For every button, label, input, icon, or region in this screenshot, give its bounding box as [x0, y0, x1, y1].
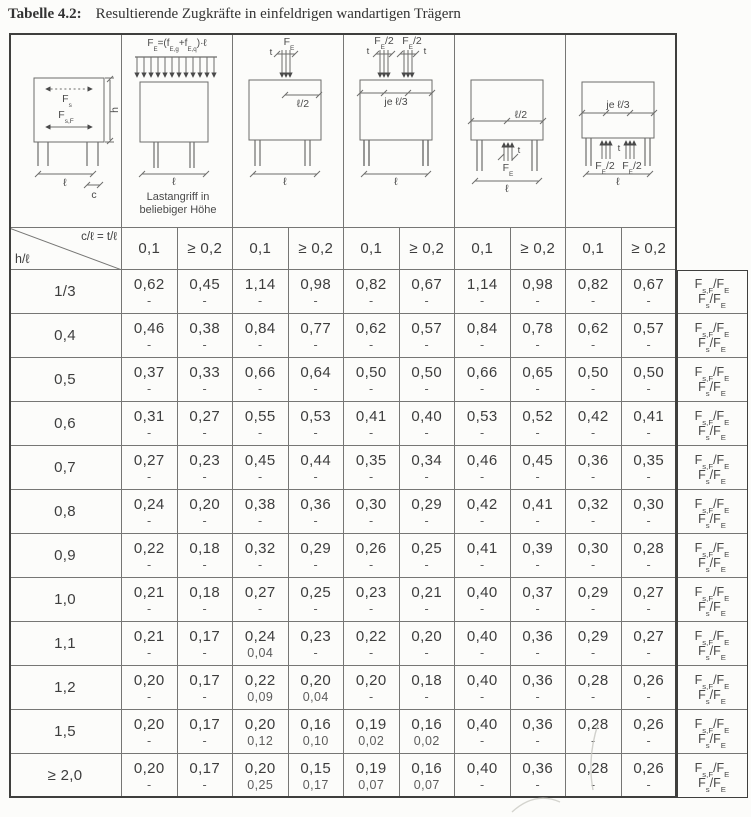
value-bottom: -	[258, 559, 263, 571]
value-cell: 0,27-	[622, 578, 678, 622]
value-bottom: -	[480, 339, 485, 351]
value-top: 0,66	[467, 364, 498, 381]
value-cell: 0,26-	[344, 534, 400, 578]
value-cell: 0,67-	[622, 270, 678, 314]
value-cell: 0,160,07	[400, 754, 456, 798]
value-cell: 0,36-	[511, 622, 567, 666]
value-bottom: -	[424, 339, 429, 351]
value-cell: 0,41-	[455, 534, 511, 578]
value-bottom: -	[258, 295, 263, 307]
formula-line-fsf: Fs,F/FE	[695, 541, 730, 556]
dim-label-t: t	[518, 145, 521, 156]
value-top: 0,20	[134, 760, 165, 777]
value-cell: 0,41-	[511, 490, 567, 534]
value-bottom: -	[424, 515, 429, 527]
value-cell: 0,200,04	[289, 666, 345, 710]
formula-line-fsf: Fs,F/FE	[695, 453, 730, 468]
point-load-bottom-center-sketch	[455, 33, 567, 228]
value-top: 0,26	[633, 716, 664, 733]
value-cell: 0,44-	[289, 446, 345, 490]
diagram-caption-line2: beliebiger Höhe	[139, 204, 216, 216]
value-bottom: -	[313, 559, 318, 571]
value-bottom: 0,04	[303, 691, 329, 703]
value-cell: 0,18-	[178, 578, 234, 622]
value-bottom: -	[591, 471, 596, 483]
value-top: 0,24	[134, 496, 165, 513]
value-top: 0,30	[578, 540, 609, 557]
column-header: 0,1	[344, 228, 400, 270]
value-bottom: -	[369, 427, 374, 439]
formula-ratio-cell: Fs,F/FEFs/FE	[677, 710, 748, 754]
empty-corner	[677, 33, 748, 228]
value-top: 0,62	[356, 320, 387, 337]
value-cell: 0,40-	[400, 402, 456, 446]
column-header: ≥ 0,2	[511, 228, 567, 270]
value-bottom: -	[591, 735, 596, 747]
value-top: 0,26	[633, 760, 664, 777]
value-bottom: -	[480, 603, 485, 615]
value-bottom: -	[591, 779, 596, 791]
value-cell: 0,18-	[178, 534, 234, 578]
value-cell: 0,26-	[622, 710, 678, 754]
value-bottom: -	[147, 559, 152, 571]
value-bottom: 0,02	[414, 735, 440, 747]
value-top: 0,38	[245, 496, 276, 513]
value-cell: 0,18-	[400, 666, 456, 710]
value-bottom: -	[369, 515, 374, 527]
value-cell: 0,200,25	[233, 754, 289, 798]
row-header-h-over-l: 1/3	[9, 270, 122, 314]
value-top: 0,20	[245, 760, 276, 777]
value-bottom: -	[535, 339, 540, 351]
force-label-right: FE/2	[622, 160, 642, 172]
formula-ratio-cell: Fs,F/FEFs/FE	[677, 314, 748, 358]
value-top: 0,19	[356, 760, 387, 777]
value-cell: 0,17-	[178, 754, 234, 798]
value-bottom: -	[646, 295, 651, 307]
value-cell: 0,41-	[622, 402, 678, 446]
value-cell: 0,98-	[511, 270, 567, 314]
value-bottom: -	[313, 647, 318, 659]
value-bottom: -	[646, 779, 651, 791]
value-top: 0,78	[522, 320, 553, 337]
value-bottom: -	[147, 471, 152, 483]
value-top: 0,23	[189, 452, 220, 469]
value-cell: 0,150,17	[289, 754, 345, 798]
value-cell: 0,23-	[289, 622, 345, 666]
formula-ratio-cell: Fs,F/FEFs/FE	[677, 402, 748, 446]
value-top: 0,27	[633, 584, 664, 601]
value-top: 0,34	[411, 452, 442, 469]
value-top: 0,19	[356, 716, 387, 733]
value-cell: 0,29-	[566, 622, 622, 666]
value-top: 0,28	[578, 672, 609, 689]
value-bottom: -	[202, 471, 207, 483]
value-cell: 0,42-	[566, 402, 622, 446]
force-label: FE	[503, 162, 514, 174]
value-bottom: -	[202, 339, 207, 351]
value-bottom: -	[313, 295, 318, 307]
value-top: 0,18	[189, 540, 220, 557]
value-bottom: -	[369, 603, 374, 615]
value-cell: 0,20-	[344, 666, 400, 710]
value-bottom: -	[258, 515, 263, 527]
value-top: 0,65	[522, 364, 553, 381]
value-top: 0,82	[356, 276, 387, 293]
dim-label-l: ℓ	[283, 176, 286, 188]
value-top: 0,29	[578, 628, 609, 645]
value-bottom: -	[258, 383, 263, 395]
value-top: 0,40	[411, 408, 442, 425]
value-cell: 0,40-	[455, 622, 511, 666]
value-bottom: -	[202, 427, 207, 439]
formula-line-fsf: Fs,F/FE	[695, 585, 730, 600]
dim-label-je-l-third: je ℓ/3	[384, 96, 407, 108]
value-cell: 0,31-	[122, 402, 178, 446]
force-label-fsf: Fs,F	[58, 109, 73, 121]
value-top: 0,27	[134, 452, 165, 469]
diagram-point-loads-bottom-thirds: je ℓ/3 t FE/2 FE/2 ℓ	[566, 33, 677, 228]
value-cell: 0,45-	[233, 446, 289, 490]
value-cell: 0,50-	[566, 358, 622, 402]
value-top: 0,26	[633, 672, 664, 689]
value-cell: 0,21-	[122, 622, 178, 666]
value-bottom: -	[369, 471, 374, 483]
value-cell: 0,67-	[400, 270, 456, 314]
value-cell: 0,21-	[122, 578, 178, 622]
dim-label-c: c	[91, 189, 96, 201]
value-top: 0,46	[134, 320, 165, 337]
value-cell: 0,39-	[511, 534, 567, 578]
value-bottom: -	[202, 647, 207, 659]
value-top: 0,66	[245, 364, 276, 381]
value-bottom: -	[424, 383, 429, 395]
value-bottom: -	[480, 647, 485, 659]
formula-line-fsf: Fs,F/FE	[695, 717, 730, 732]
value-cell: 0,65-	[511, 358, 567, 402]
value-top: 0,45	[245, 452, 276, 469]
formula-ratio-cell: Fs,F/FEFs/FE	[677, 490, 748, 534]
value-cell: 0,62-	[344, 314, 400, 358]
value-bottom: -	[258, 427, 263, 439]
value-top: 0,62	[134, 276, 165, 293]
value-cell: 0,30-	[566, 534, 622, 578]
value-cell: 0,78-	[511, 314, 567, 358]
value-top: 0,82	[578, 276, 609, 293]
value-bottom: -	[591, 339, 596, 351]
value-cell: 0,57-	[400, 314, 456, 358]
value-top: 0,20	[245, 716, 276, 733]
value-bottom: 0,25	[247, 779, 273, 791]
value-top: 1,14	[245, 276, 276, 293]
value-bottom: -	[147, 691, 152, 703]
value-cell: 0,62-	[566, 314, 622, 358]
value-cell: 0,29-	[400, 490, 456, 534]
formula-line-fsf: Fs,F/FE	[695, 673, 730, 688]
row-header-h-over-l: 1,0	[9, 578, 122, 622]
value-cell: 0,53-	[289, 402, 345, 446]
value-top: 0,20	[356, 672, 387, 689]
value-top: 0,57	[633, 320, 664, 337]
value-bottom: -	[535, 427, 540, 439]
value-top: 0,40	[467, 716, 498, 733]
value-top: 0,27	[189, 408, 220, 425]
corner-header-cell: c/ℓ = t/ℓ h/ℓ	[9, 228, 122, 270]
value-top: 0,20	[411, 628, 442, 645]
value-top: 0,50	[578, 364, 609, 381]
value-bottom: -	[147, 515, 152, 527]
value-bottom: -	[424, 295, 429, 307]
value-bottom: -	[147, 647, 152, 659]
value-bottom: -	[147, 339, 152, 351]
empty-corner	[677, 228, 748, 270]
value-cell: 0,40-	[455, 754, 511, 798]
value-top: 0,37	[522, 584, 553, 601]
value-top: 0,17	[189, 628, 220, 645]
formula-ratio-cell: Fs,F/FEFs/FE	[677, 534, 748, 578]
value-bottom: -	[147, 735, 152, 747]
value-cell: 0,160,02	[400, 710, 456, 754]
value-top: 0,18	[411, 672, 442, 689]
diagram-legend: Fs Fs,F h ℓ c	[9, 33, 122, 228]
value-cell: 0,190,07	[344, 754, 400, 798]
value-bottom: -	[480, 515, 485, 527]
value-top: 0,22	[356, 628, 387, 645]
value-bottom: -	[424, 691, 429, 703]
table-caption-number: Tabelle 4.2:	[8, 6, 82, 22]
value-cell: 0,23-	[344, 578, 400, 622]
value-bottom: -	[147, 383, 152, 395]
value-bottom: -	[258, 339, 263, 351]
column-header: 0,1	[122, 228, 178, 270]
value-cell: 0,28-	[566, 710, 622, 754]
value-bottom: -	[369, 295, 374, 307]
dim-label-l: ℓ	[505, 183, 508, 195]
value-top: 0,40	[467, 628, 498, 645]
value-cell: 0,38-	[178, 314, 234, 358]
value-bottom: -	[369, 647, 374, 659]
point-loads-top-thirds-sketch	[344, 33, 456, 228]
value-top: 0,31	[134, 408, 165, 425]
value-cell: 0,40-	[455, 578, 511, 622]
formula-ratio-cell: Fs,F/FEFs/FE	[677, 754, 748, 798]
value-cell: 0,33-	[178, 358, 234, 402]
value-cell: 0,190,02	[344, 710, 400, 754]
value-top: 0,40	[467, 672, 498, 689]
value-cell: 0,21-	[400, 578, 456, 622]
value-top: 0,41	[522, 496, 553, 513]
value-bottom: -	[202, 691, 207, 703]
value-top: 0,55	[245, 408, 276, 425]
value-cell: 0,29-	[289, 534, 345, 578]
value-bottom: -	[313, 515, 318, 527]
value-cell: 0,32-	[233, 534, 289, 578]
value-bottom: -	[646, 691, 651, 703]
force-label-left: FE/2	[595, 160, 615, 172]
value-bottom: -	[646, 471, 651, 483]
value-top: 0,29	[578, 584, 609, 601]
value-top: 0,15	[300, 760, 331, 777]
value-cell: 0,66-	[233, 358, 289, 402]
table-caption-text: Resultierende Zugkräfte in einfeldrigen …	[96, 6, 461, 22]
value-bottom: -	[424, 559, 429, 571]
value-bottom: -	[535, 295, 540, 307]
value-cell: 0,30-	[344, 490, 400, 534]
value-cell: 0,17-	[178, 622, 234, 666]
value-cell: 0,36-	[511, 754, 567, 798]
row-header-h-over-l: 0,5	[9, 358, 122, 402]
value-cell: 0,20-	[122, 710, 178, 754]
value-cell: 0,57-	[622, 314, 678, 358]
value-cell: 0,20-	[122, 754, 178, 798]
value-top: 0,20	[189, 496, 220, 513]
value-cell: 0,98-	[289, 270, 345, 314]
value-top: 0,33	[189, 364, 220, 381]
value-top: 0,67	[411, 276, 442, 293]
value-bottom: 0,10	[303, 735, 329, 747]
value-top: 0,39	[522, 540, 553, 557]
value-bottom: -	[591, 383, 596, 395]
value-cell: 0,240,04	[233, 622, 289, 666]
formula-line-fsf: Fs,F/FE	[695, 409, 730, 424]
corner-header-bottom: h/ℓ	[15, 252, 29, 266]
value-bottom: 0,04	[247, 647, 273, 659]
formula-line-fsf: Fs,F/FE	[695, 761, 730, 776]
value-bottom: -	[313, 339, 318, 351]
value-top: 0,21	[411, 584, 442, 601]
value-top: 0,84	[245, 320, 276, 337]
value-bottom: -	[535, 515, 540, 527]
diagram-point-load-bottom-center: ℓ/2 t FE ℓ	[455, 33, 566, 228]
value-top: 0,41	[633, 408, 664, 425]
value-top: 0,42	[467, 496, 498, 513]
value-cell: 0,20-	[122, 666, 178, 710]
value-top: 0,36	[578, 452, 609, 469]
value-top: 0,41	[467, 540, 498, 557]
value-bottom: -	[480, 735, 485, 747]
value-top: 0,40	[467, 584, 498, 601]
value-top: 0,57	[411, 320, 442, 337]
value-bottom: 0,09	[247, 691, 273, 703]
column-header: ≥ 0,2	[289, 228, 345, 270]
value-cell: 0,77-	[289, 314, 345, 358]
value-top: 0,41	[356, 408, 387, 425]
value-bottom: -	[646, 383, 651, 395]
value-cell: 0,32-	[566, 490, 622, 534]
formula-line-fsf: Fs,F/FE	[695, 277, 730, 292]
value-cell: 0,36-	[566, 446, 622, 490]
value-top: 0,22	[245, 672, 276, 689]
value-bottom: 0,07	[414, 779, 440, 791]
value-bottom: -	[424, 471, 429, 483]
dim-label-t-right: t	[424, 46, 427, 57]
value-cell: 0,62-	[122, 270, 178, 314]
value-top: 1,14	[467, 276, 498, 293]
value-cell: 0,20-	[400, 622, 456, 666]
value-top: 0,50	[633, 364, 664, 381]
value-cell: 0,27-	[622, 622, 678, 666]
value-top: 0,17	[189, 716, 220, 733]
value-cell: 0,17-	[178, 710, 234, 754]
value-top: 0,20	[134, 716, 165, 733]
diagram-point-loads-top-thirds: FE/2 FE/2 t t je ℓ/3 ℓ	[344, 33, 455, 228]
value-top: 0,22	[134, 540, 165, 557]
value-bottom: -	[480, 691, 485, 703]
value-top: 0,25	[411, 540, 442, 557]
value-bottom: -	[202, 383, 207, 395]
value-top: 0,28	[633, 540, 664, 557]
column-header: 0,1	[233, 228, 289, 270]
value-bottom: 0,02	[358, 735, 384, 747]
value-top: 0,26	[356, 540, 387, 557]
value-top: 0,18	[189, 584, 220, 601]
value-top: 0,36	[522, 672, 553, 689]
value-cell: 0,40-	[455, 710, 511, 754]
value-top: 0,16	[300, 716, 331, 733]
value-top: 0,38	[189, 320, 220, 337]
value-top: 0,62	[578, 320, 609, 337]
value-bottom: -	[202, 735, 207, 747]
row-header-h-over-l: 1,2	[9, 666, 122, 710]
value-bottom: -	[424, 427, 429, 439]
dim-label-je-l-third: je ℓ/3	[606, 99, 629, 111]
value-cell: 0,84-	[233, 314, 289, 358]
value-top: 0,40	[467, 760, 498, 777]
value-cell: 0,40-	[455, 666, 511, 710]
value-top: 0,23	[300, 628, 331, 645]
value-bottom: -	[591, 647, 596, 659]
value-cell: 0,37-	[122, 358, 178, 402]
value-top: 0,27	[633, 628, 664, 645]
value-bottom: -	[202, 295, 207, 307]
value-bottom: -	[313, 383, 318, 395]
value-cell: 0,220,09	[233, 666, 289, 710]
diagram-caption-line1: Lastangriff in	[147, 191, 210, 203]
value-top: 0,16	[411, 760, 442, 777]
value-bottom: -	[646, 339, 651, 351]
value-cell: 0,36-	[511, 710, 567, 754]
value-bottom: -	[424, 603, 429, 615]
point-load-top-center-sketch	[233, 33, 345, 228]
value-cell: 0,17-	[178, 666, 234, 710]
formula-ratio-cell: Fs,F/FEFs/FE	[677, 666, 748, 710]
row-header-h-over-l: 1,1	[9, 622, 122, 666]
value-top: 0,37	[134, 364, 165, 381]
value-top: 0,30	[356, 496, 387, 513]
value-top: 0,67	[633, 276, 664, 293]
formula-ratio-cell: Fs,F/FEFs/FE	[677, 446, 748, 490]
dim-label-t-left: t	[367, 46, 370, 57]
value-top: 0,36	[300, 496, 331, 513]
value-cell: 0,22-	[122, 534, 178, 578]
dim-label-l: ℓ	[172, 176, 175, 188]
value-top: 0,52	[522, 408, 553, 425]
value-cell: 0,64-	[289, 358, 345, 402]
force-label-left: FE/2	[374, 35, 394, 47]
force-label-right: FE/2	[402, 35, 422, 47]
value-top: 0,28	[578, 760, 609, 777]
formula-ratio-cell: Fs,F/FEFs/FE	[677, 578, 748, 622]
value-cell: 0,36-	[289, 490, 345, 534]
value-cell: 0,45-	[511, 446, 567, 490]
value-bottom: -	[202, 559, 207, 571]
value-cell: 0,22-	[344, 622, 400, 666]
value-bottom: -	[369, 383, 374, 395]
value-bottom: -	[258, 603, 263, 615]
value-cell: 0,55-	[233, 402, 289, 446]
value-bottom: -	[424, 647, 429, 659]
value-top: 0,50	[356, 364, 387, 381]
